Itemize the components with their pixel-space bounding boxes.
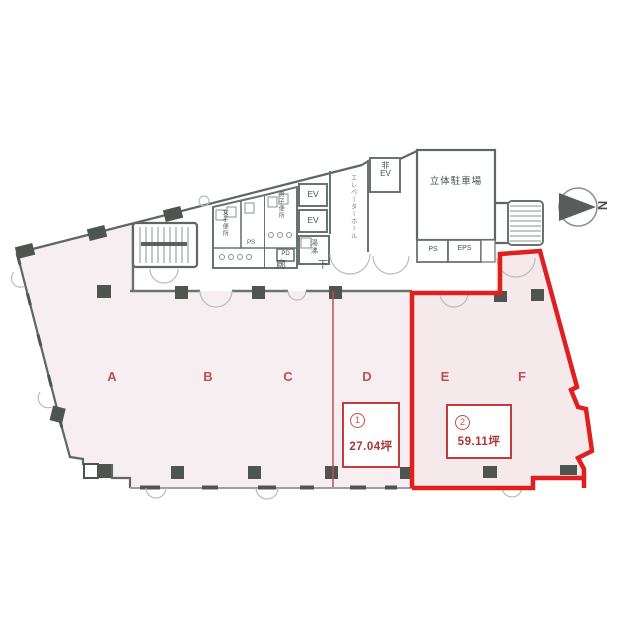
ev-upper-label: EV: [299, 190, 327, 199]
womens-wc-label: 女子便所: [221, 209, 227, 245]
pd-label: PD: [278, 251, 293, 257]
floorplan-drawing: [0, 0, 630, 630]
corridor-label: 廊下: [276, 261, 360, 272]
zone-label-b: B: [197, 369, 219, 384]
ps-core-label: PS: [243, 240, 259, 246]
entry-box: [84, 464, 98, 478]
emergency-ev-label: 非 EV: [372, 162, 399, 179]
ps-parking-label: PS: [419, 246, 447, 253]
zone-label-d: D: [356, 369, 378, 384]
zone-label-f: F: [511, 369, 533, 384]
unit2-number: 2: [455, 415, 470, 430]
external-stair: [508, 201, 543, 245]
parking-label: 立体駐車場: [417, 177, 495, 187]
mens-wc-label: 男子便所: [277, 191, 283, 227]
unit2-number-badge: 2: [455, 413, 470, 430]
ev-lower-label: EV: [299, 216, 327, 225]
unit1-number-badge: 1: [350, 411, 365, 428]
elevator-hall-label: エレベーターホール: [349, 174, 356, 252]
eps-label: EPS: [449, 245, 480, 252]
north-arrow-icon: [559, 188, 597, 226]
zone-label-a: A: [101, 369, 123, 384]
floor-plan-page: A B C D E F 1 27.04坪 2 59.11坪 立体駐車場 エレベー…: [0, 0, 630, 630]
unit2-area: 59.11坪: [447, 433, 511, 449]
stairwell: [133, 223, 197, 267]
north-label: N: [595, 201, 610, 210]
unit1-area: 27.04坪: [343, 438, 399, 454]
zone-label-e: E: [434, 369, 456, 384]
zone-label-c: C: [277, 369, 299, 384]
unit1-number: 1: [350, 413, 365, 428]
